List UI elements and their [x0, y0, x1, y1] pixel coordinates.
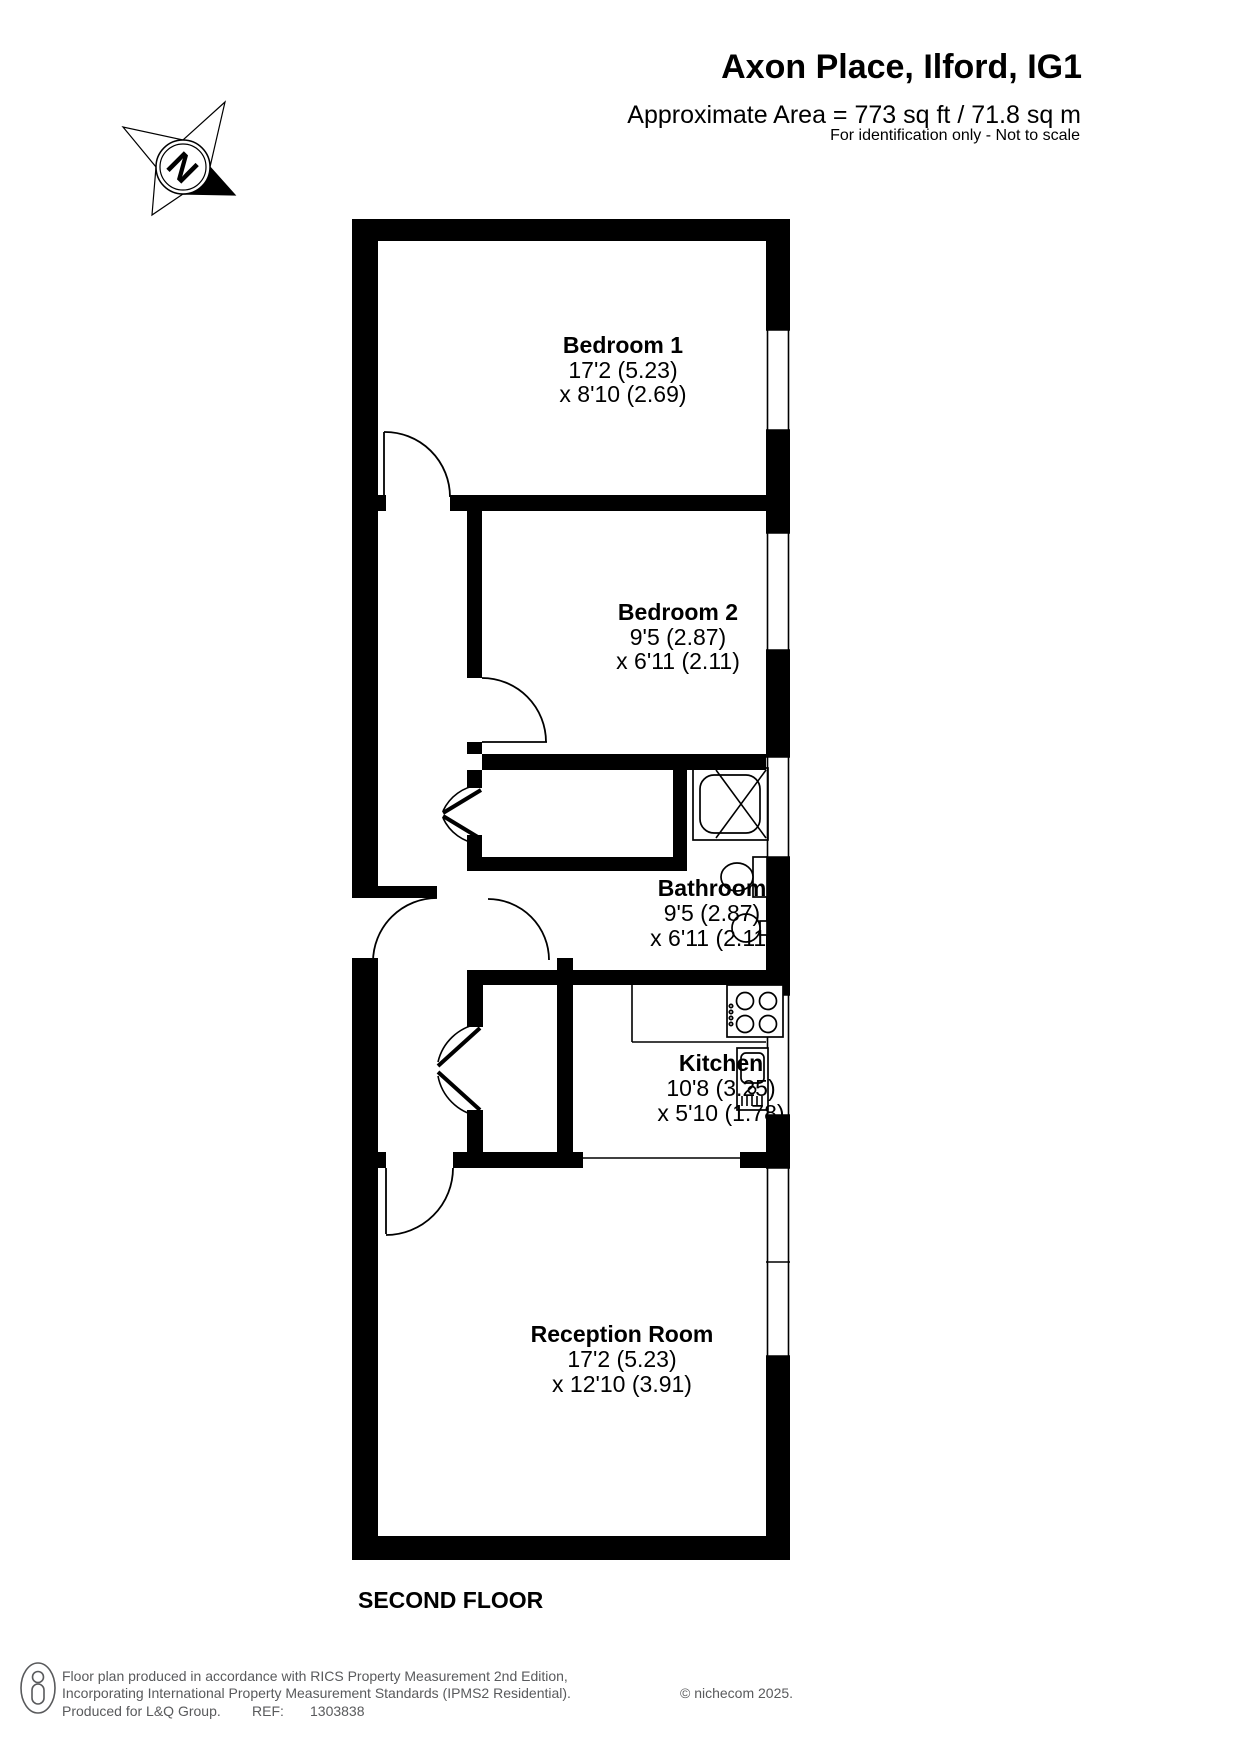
door-reception	[386, 1168, 453, 1235]
floorplan-canvas: Axon Place, Ilford, IG1 Approximate Area…	[0, 0, 1241, 1755]
window-bedroom1	[766, 330, 790, 430]
cupboard-door-hall	[443, 785, 481, 844]
window-bathroom	[766, 757, 790, 857]
hob-icon	[727, 985, 783, 1037]
footer-copyright: © nichecom 2025.	[680, 1685, 793, 1701]
footer-ref-number: 1303838	[310, 1703, 365, 1719]
area-subtitle: Approximate Area = 773 sq ft / 71.8 sq m	[627, 101, 1081, 129]
floor-label: SECOND FLOOR	[358, 1587, 544, 1613]
door-bedroom2	[482, 678, 547, 742]
person-icon	[21, 1663, 55, 1713]
shower-icon	[716, 770, 766, 838]
room-label-bedroom-1: Bedroom 1 17'2 (5.23) x 8'10 (2.69)	[559, 332, 686, 407]
room-dim2: x 8'10 (2.69)	[559, 381, 686, 407]
room-dim1: 9'5 (2.87)	[630, 624, 726, 650]
room-dim2: x 6'11 (2.11)	[650, 925, 774, 951]
bathtub-icon	[693, 768, 768, 840]
door-hall-left	[373, 898, 437, 962]
room-dim1: 17'2 (5.23)	[567, 1346, 676, 1372]
disclaimer-text: For identification only - Not to scale	[830, 127, 1080, 144]
room-dim1: 17'2 (5.23)	[568, 357, 677, 383]
room-label-reception: Reception Room 17'2 (5.23) x 12'10 (3.91…	[531, 1321, 714, 1397]
room-label-bedroom-2: Bedroom 2 9'5 (2.87) x 6'11 (2.11)	[616, 599, 740, 674]
room-name: Kitchen	[679, 1050, 763, 1076]
footer-line2: Incorporating International Property Mea…	[62, 1685, 571, 1701]
footer: Floor plan produced in accordance with R…	[21, 1663, 793, 1719]
room-dim2: x 5'10 (1.78)	[657, 1100, 784, 1126]
room-name: Bathroom	[658, 875, 767, 901]
footer-ref-label: REF:	[252, 1703, 284, 1719]
footer-produced: Produced for L&Q Group.	[62, 1703, 221, 1719]
door-bedroom1	[384, 432, 450, 497]
header: Axon Place, Ilford, IG1 Approximate Area…	[627, 48, 1082, 144]
window-reception	[766, 1168, 790, 1356]
window-bedroom2	[766, 533, 790, 650]
door-bathroom	[488, 899, 549, 960]
compass-rose-icon: N	[123, 102, 235, 215]
room-label-bathroom: Bathroom 9'5 (2.87) x 6'11 (2.11)	[650, 875, 774, 951]
room-name: Bedroom 1	[563, 332, 683, 358]
footer-line1: Floor plan produced in accordance with R…	[62, 1668, 568, 1684]
page-title: Axon Place, Ilford, IG1	[721, 48, 1082, 86]
room-dim2: x 6'11 (2.11)	[616, 648, 740, 674]
doors	[373, 432, 549, 1235]
room-dim1: 10'8 (3.25)	[666, 1075, 775, 1101]
room-name: Reception Room	[531, 1321, 714, 1347]
room-dim1: 9'5 (2.87)	[664, 900, 760, 926]
room-name: Bedroom 2	[618, 599, 738, 625]
room-dim2: x 12'10 (3.91)	[552, 1371, 692, 1397]
cupboard-door-lobby	[438, 1024, 480, 1116]
